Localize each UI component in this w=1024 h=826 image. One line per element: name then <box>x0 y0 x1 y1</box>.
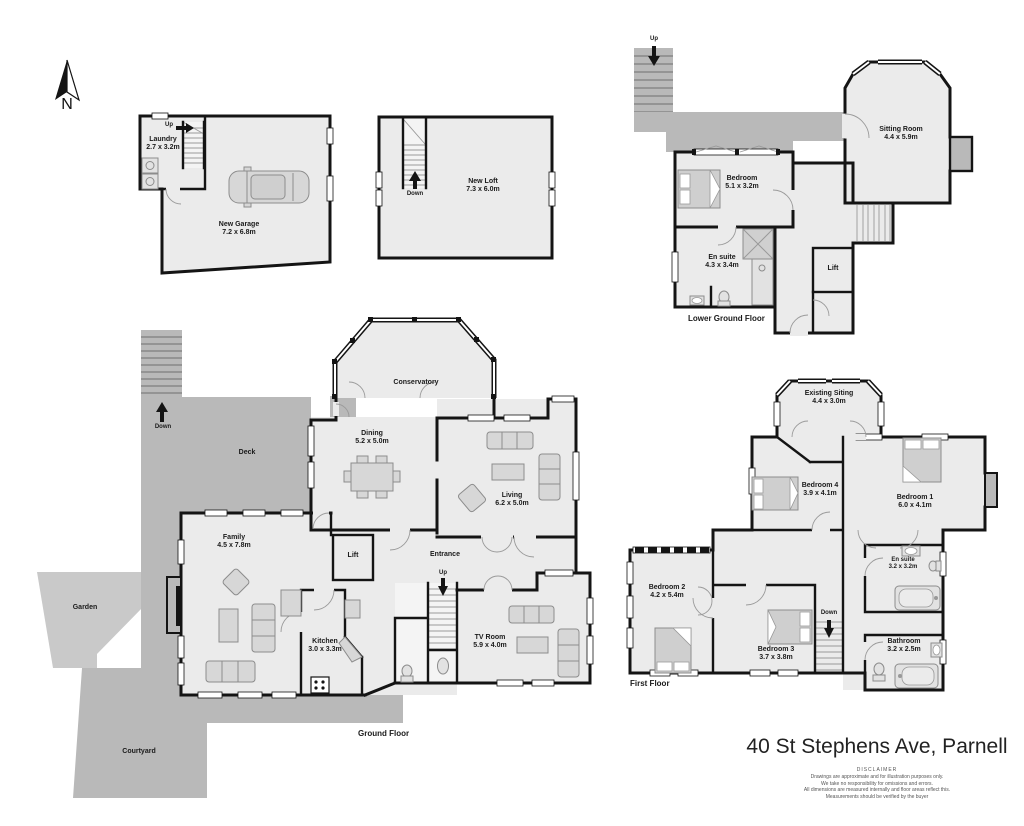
bed-icon <box>655 628 691 673</box>
sofa-icon <box>487 432 533 449</box>
stairs-label-up: Up <box>165 122 173 129</box>
room-label-bedroom-3: Bedroom 33.7 x 3.8m <box>758 646 795 663</box>
room-label-lift: Lift <box>348 552 359 560</box>
window <box>327 128 333 144</box>
stairs-label-down: Down <box>821 610 837 617</box>
first-floor-plan <box>627 381 997 690</box>
window <box>327 176 333 201</box>
window <box>549 172 555 188</box>
room-label-bathroom: Bathroom3.2 x 2.5m <box>887 638 920 655</box>
sofa-icon <box>252 604 275 652</box>
kitchen-counter <box>345 600 360 618</box>
stairs-label-down: Down <box>407 191 423 198</box>
sofa-icon <box>206 661 255 682</box>
area-label-deck: Deck <box>239 449 256 457</box>
window <box>376 190 382 206</box>
disclaimer-line: Measurements should be verified by the b… <box>804 794 950 801</box>
bathtub-icon <box>895 664 938 688</box>
compass-label: N <box>61 96 73 114</box>
bed-icon <box>903 438 941 482</box>
room-label-laundry: Laundry2.7 x 3.2m <box>146 136 179 153</box>
room-label-kitchen: Kitchen3.0 x 3.3m <box>308 638 341 655</box>
window <box>152 113 168 119</box>
disclaimer-line: Drawings are approximate and for illustr… <box>804 774 950 781</box>
window <box>376 172 382 188</box>
toilet-icon <box>401 665 413 682</box>
page-title: 40 St Stephens Ave, Parnell <box>746 735 1007 759</box>
area-label-garden: Garden <box>73 604 98 612</box>
car-icon <box>229 167 309 207</box>
floor-plan-canvas <box>0 0 1024 826</box>
sink-icon <box>690 296 704 305</box>
stairs-label-up: Up <box>650 36 658 43</box>
sink-icon <box>931 643 942 657</box>
disclaimer-heading: DISCLAIMER <box>804 767 950 774</box>
room-label-new-loft: New Loft7.3 x 6.0m <box>466 178 499 195</box>
chimney <box>985 473 997 507</box>
sofa-icon <box>509 606 554 623</box>
room-label-en-suite: En suite3.2 x 3.2m <box>889 557 918 571</box>
disclaimer-line: We take no responsibility for omissions … <box>804 781 950 788</box>
room-label-bedroom-2: Bedroom 24.2 x 5.4m <box>649 584 686 601</box>
area-label-courtyard: Courtyard <box>122 748 155 756</box>
room-label-entrance: Entrance <box>430 551 460 559</box>
room-label-en-suite: En suite4.3 x 3.4m <box>705 254 738 271</box>
kitchen-counter <box>281 590 301 616</box>
coffee-table-icon <box>492 464 524 480</box>
ground-floor-plan <box>37 317 593 798</box>
coffee-table-icon <box>219 609 238 642</box>
bed-icon <box>678 170 720 208</box>
floorplan-page: N Up Laundry2.7 x 3.2m New Garage7.2 x 6… <box>0 0 1024 826</box>
north-compass-icon <box>55 60 79 100</box>
sink-icon <box>902 546 920 556</box>
chimney <box>950 137 972 171</box>
room-label-sitting-room: Sitting Room4.4 x 5.9m <box>879 126 923 143</box>
room-label-bedroom: Bedroom5.1 x 3.2m <box>725 175 758 192</box>
room-label-new-garage: New Garage7.2 x 6.8m <box>219 221 259 238</box>
window <box>672 252 678 282</box>
room-label-family: Family4.5 x 7.8m <box>217 534 250 551</box>
room-label-bedroom-1: Bedroom 16.0 x 4.1m <box>897 494 934 511</box>
bathtub-icon <box>895 586 940 610</box>
disclaimer-line: All dimensions are measured internally a… <box>804 787 950 794</box>
floor-label-first: First Floor <box>630 679 670 688</box>
bed-icon <box>752 477 798 510</box>
disclaimer: DISCLAIMER Drawings are approximate and … <box>804 767 950 801</box>
room-label-lift: Lift <box>828 265 839 273</box>
room-label-conservatory: Conservatory <box>393 379 438 387</box>
stairs-label-up: Up <box>439 570 447 577</box>
lower-ground-plan <box>634 46 972 336</box>
bed-icon <box>768 610 812 644</box>
fireplace-icon <box>167 577 181 633</box>
stairs-label-down: Down <box>155 424 171 431</box>
floor-label-ground: Ground Floor <box>358 729 409 738</box>
room-label-tv-room: TV Room5.9 x 4.0m <box>473 634 506 651</box>
washer-dryer-icon <box>142 158 158 189</box>
toilet-icon <box>929 561 941 571</box>
window <box>549 190 555 206</box>
sofa-icon <box>558 629 579 677</box>
stove-icon <box>311 677 329 693</box>
toilet-icon <box>873 663 885 681</box>
garden-area <box>37 572 143 668</box>
room-label-existing-siting: Existing Siting4.4 x 3.0m <box>805 390 854 407</box>
room-label-living: Living6.2 x 5.0m <box>495 492 528 509</box>
floor-label-lower-ground: Lower Ground Floor <box>688 314 765 323</box>
sink-icon <box>438 658 449 674</box>
walkway <box>634 112 845 152</box>
toilet-icon <box>718 291 730 306</box>
room-label-bedroom-4: Bedroom 43.9 x 4.1m <box>802 482 839 499</box>
tv-table-icon <box>517 637 548 653</box>
sofa-icon <box>539 454 560 500</box>
room-label-dining: Dining5.2 x 5.0m <box>355 430 388 447</box>
